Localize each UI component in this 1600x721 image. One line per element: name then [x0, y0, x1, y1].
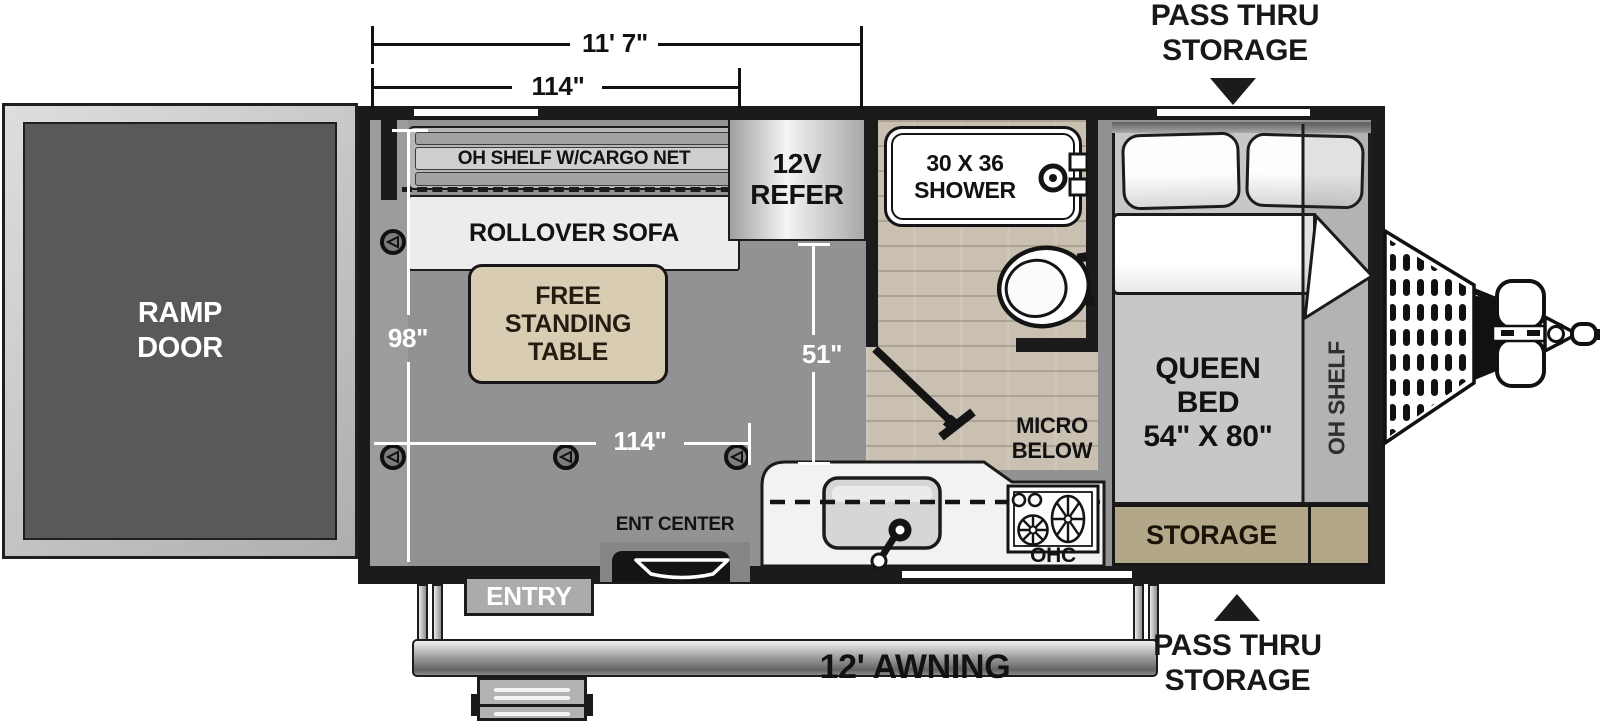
dim-floor-length-box: 114" [604, 424, 676, 458]
step-tread [494, 712, 570, 716]
dim-line [602, 86, 740, 89]
ramp-door-label: RAMP DOOR [137, 296, 223, 366]
arrow-up-icon [1214, 594, 1260, 621]
oh-shelf-cargo-net-label: OH SHELF W/CARGO NET [458, 148, 691, 170]
dim-line [372, 86, 512, 89]
refrigerator-label: 12V REFER [750, 149, 843, 211]
rollover-sofa: ROLLOVER SOFA [408, 195, 740, 271]
dim-overall-length: 11' 7" [582, 28, 648, 59]
window-top-right [1157, 109, 1310, 116]
shelf-slat [415, 132, 733, 145]
bathroom-wall-corner [1016, 338, 1098, 352]
bathroom-wall-left [866, 120, 878, 347]
oh-shelf-label-box: OH SHELF [1312, 328, 1362, 468]
ramp-door: RAMP DOOR [23, 122, 337, 540]
storage-label: STORAGE [1146, 520, 1277, 551]
dim-interior-width: 98" [388, 323, 428, 354]
rear-wall-stub [381, 120, 397, 200]
dim-tick [371, 68, 374, 108]
shelf-slat [415, 172, 733, 186]
tongue-jack [1545, 317, 1577, 351]
floorplan-diagram: RAMP DOOR OH SHELF W/CARGO NET ROLLOVER … [0, 0, 1600, 721]
dim-floor-length: 114" [613, 426, 666, 457]
dim-tick [748, 423, 751, 465]
step-tread [494, 696, 570, 700]
dim-line [372, 43, 570, 46]
ohc-label: OHC [1030, 544, 1076, 568]
step-tread [494, 688, 570, 692]
dim-line [812, 245, 815, 335]
micro-below-label-box: MICRO BELOW [1000, 412, 1104, 464]
dim-line [684, 442, 748, 445]
dim-line [812, 372, 815, 464]
hitch-coupler [1572, 324, 1600, 344]
pass-thru-bottom-label-box: PASS THRU STORAGE [1135, 624, 1340, 704]
pass-thru-bottom-label: PASS THRU STORAGE [1153, 629, 1321, 699]
awning-post [432, 584, 443, 641]
awning-post [417, 584, 428, 641]
oh-shelf-cargo-net: OH SHELF W/CARGO NET [408, 126, 740, 190]
dim-overall-length-box: 11' 7" [560, 28, 670, 58]
dim-box-length-box: 114" [508, 71, 608, 101]
dim-interior-width-box: 98" [380, 318, 436, 358]
awning-label-box: 12' AWNING [790, 648, 1040, 686]
pass-thru-top-label-box: PASS THRU STORAGE [1140, 0, 1330, 74]
dim-tick [371, 26, 374, 64]
dim-tick [860, 26, 863, 108]
sofa-fold-dashed-line [402, 187, 746, 192]
tv-cabinet [612, 551, 730, 582]
ent-center-label-box: ENT CENTER [600, 514, 750, 536]
window-top-left [414, 109, 538, 116]
micro-below-label: MICRO BELOW [1012, 413, 1092, 464]
shower-label: 30 X 36 SHOWER [914, 150, 1016, 203]
ent-center-label: ENT CENTER [616, 514, 734, 536]
dim-line [407, 362, 410, 562]
ramp-door-frame: RAMP DOOR [2, 103, 358, 559]
free-standing-table-label: FREE STANDING TABLE [505, 282, 631, 366]
shower: 30 X 36 SHOWER [884, 126, 1082, 227]
shelf-slat-label: OH SHELF W/CARGO NET [415, 147, 733, 170]
awning-label: 12' AWNING [820, 648, 1011, 687]
dim-galley-depth-box: 51" [796, 338, 848, 370]
dim-box-length: 114" [531, 71, 584, 102]
window-bottom [902, 571, 1132, 578]
storage-label-box: STORAGE [1115, 507, 1308, 563]
bed-blanket [1112, 213, 1316, 295]
free-standing-table: FREE STANDING TABLE [468, 264, 668, 384]
dim-galley-depth: 51" [802, 339, 842, 370]
a-frame-tongue [1474, 291, 1562, 377]
rollover-sofa-label: ROLLOVER SOFA [469, 219, 679, 248]
dim-tick [798, 462, 830, 465]
rock-guard [1385, 231, 1474, 443]
queen-bed-label-box: QUEEN BED 54" X 80" [1112, 318, 1304, 488]
ohc-label-box: OHC [1018, 544, 1088, 568]
refrigerator: 12V REFER [728, 120, 866, 241]
pillow-left [1121, 131, 1241, 210]
arrow-down-icon [1210, 78, 1256, 105]
pass-thru-top-label: PASS THRU STORAGE [1151, 0, 1319, 69]
ent-center-cabinet [600, 542, 750, 582]
queen-bed-label: QUEEN BED 54" X 80" [1143, 352, 1272, 454]
entry-door: ENTRY [464, 576, 594, 616]
dim-line [407, 131, 410, 315]
dim-tick [392, 129, 428, 132]
dim-line [658, 43, 862, 46]
tank-cover [1474, 296, 1513, 374]
oh-shelf-label: OH SHELF [1324, 341, 1351, 455]
storage-divider [1308, 507, 1311, 563]
bathroom-wall-right [1086, 120, 1098, 352]
step-divider [480, 704, 584, 707]
entry-label: ENTRY [486, 581, 572, 612]
awning-bar [412, 639, 1158, 677]
entry-steps [477, 677, 587, 721]
propane-tanks [1493, 281, 1548, 386]
storage-compartment: STORAGE [1112, 504, 1371, 566]
dim-line [374, 442, 596, 445]
dim-tick [738, 68, 741, 108]
